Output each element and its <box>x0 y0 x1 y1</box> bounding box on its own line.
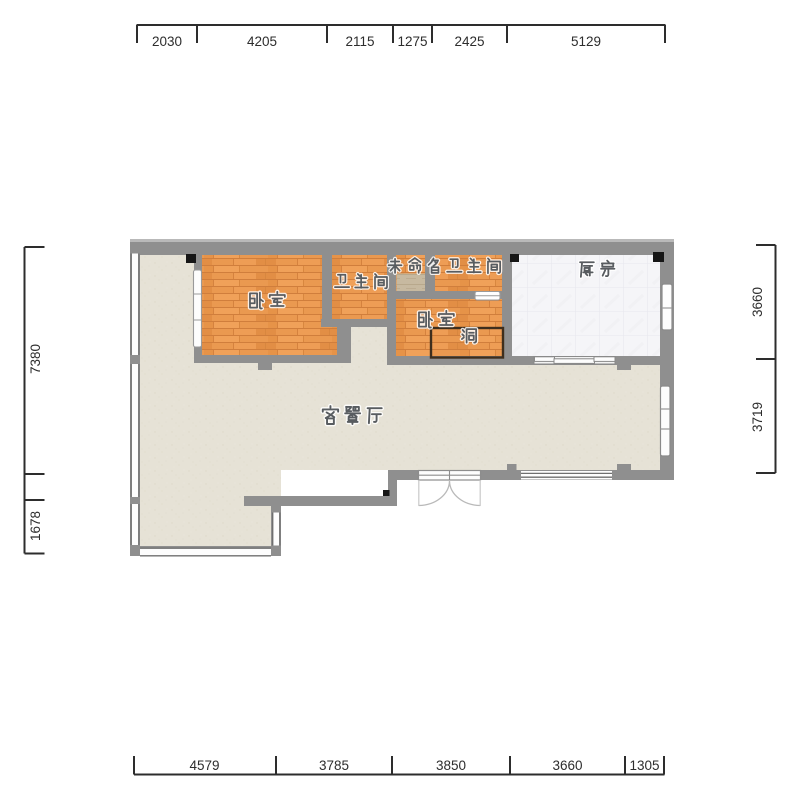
svg-text:2030: 2030 <box>152 34 182 49</box>
svg-text:2115: 2115 <box>345 34 374 49</box>
svg-text:3850: 3850 <box>436 758 466 773</box>
svg-text:1275: 1275 <box>397 34 427 49</box>
svg-text:3660: 3660 <box>750 287 765 317</box>
svg-text:4579: 4579 <box>189 758 219 773</box>
svg-text:3719: 3719 <box>750 402 765 432</box>
svg-text:7380: 7380 <box>28 344 43 374</box>
svg-text:5129: 5129 <box>571 34 601 49</box>
svg-text:1305: 1305 <box>629 758 659 773</box>
svg-text:3660: 3660 <box>552 758 582 773</box>
svg-text:1678: 1678 <box>28 511 43 541</box>
svg-text:4205: 4205 <box>247 34 277 49</box>
svg-text:3785: 3785 <box>319 758 349 773</box>
svg-text:2425: 2425 <box>454 34 484 49</box>
